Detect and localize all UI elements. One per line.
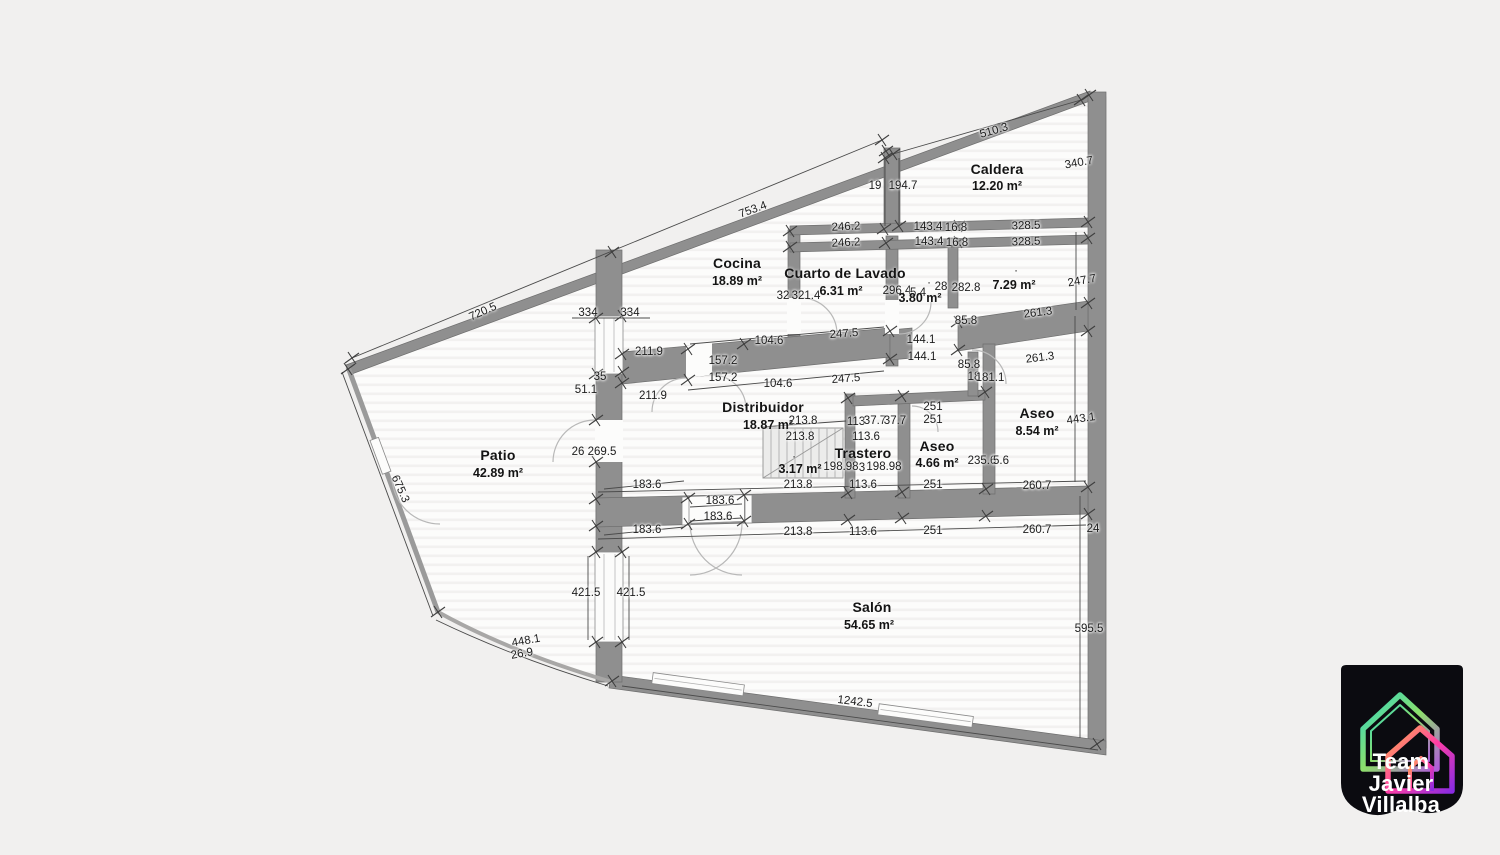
logo-text-line: Javier: [1341, 773, 1461, 795]
logo-text-line: Villalba: [1341, 794, 1461, 816]
logo-text-line: Team: [1341, 751, 1461, 773]
agency-logo: Team Javier Villalba: [1341, 665, 1463, 823]
floor-plan-page: 720.5753.4510.3340.719194.7246.2246.2143…: [0, 0, 1500, 855]
staircase: [763, 428, 843, 478]
logo-text: Team Javier Villalba: [1341, 751, 1461, 816]
floor-plan-drawing: [0, 0, 1500, 855]
